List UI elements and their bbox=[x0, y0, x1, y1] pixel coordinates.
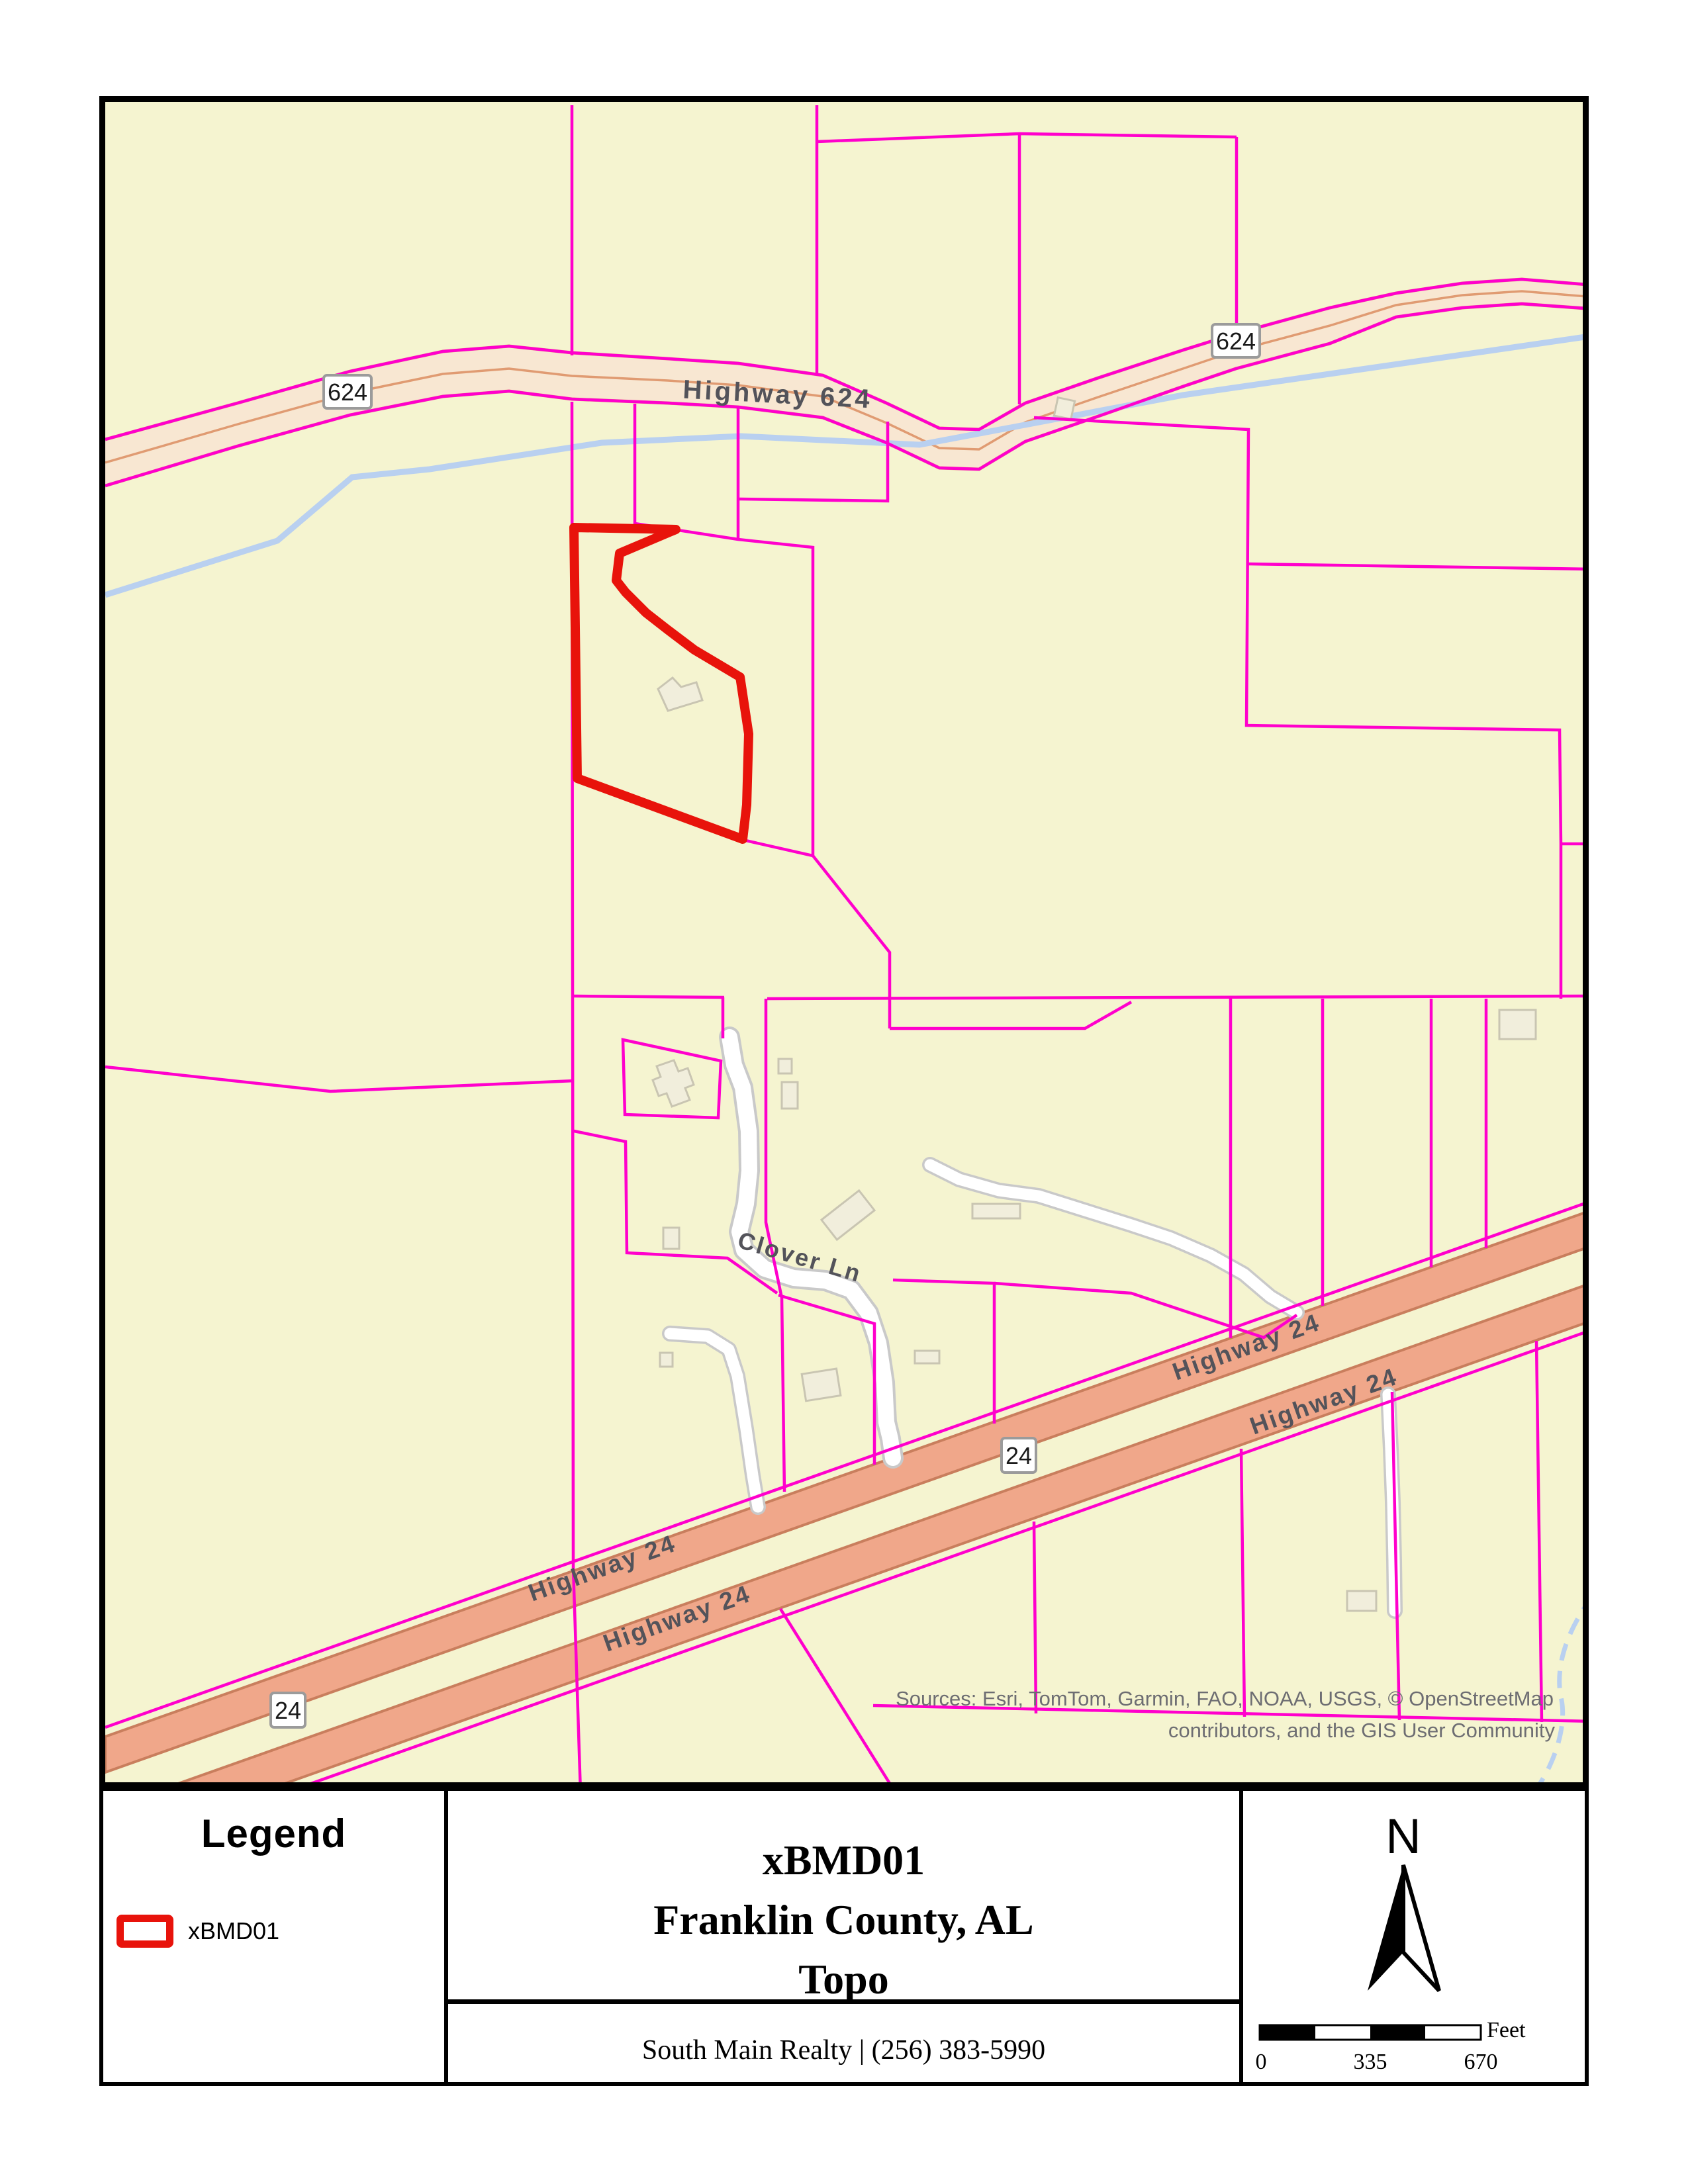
north-label: N bbox=[1385, 1809, 1421, 1864]
scale-bar: 0 335 670 Feet bbox=[1256, 2018, 1526, 2074]
route-24-number: 24 bbox=[275, 1697, 301, 1724]
scale-tick-670: 670 bbox=[1464, 2050, 1498, 2074]
legend-panel: Legend xBMD01 bbox=[99, 1787, 448, 2086]
legend-title: Legend bbox=[103, 1811, 444, 1856]
route-shield-624-icon: 624 bbox=[1212, 324, 1260, 357]
scale-tick-0: 0 bbox=[1256, 2050, 1267, 2074]
route-24-number: 24 bbox=[1006, 1442, 1032, 1469]
realty-footer: South Main Realty | (256) 383-5990 bbox=[448, 2034, 1239, 2066]
map-title-line2: Franklin County, AL bbox=[448, 1890, 1239, 1950]
map-title-line1: xBMD01 bbox=[448, 1831, 1239, 1890]
route-shield-624-icon: 624 bbox=[324, 375, 371, 408]
map-canvas: 624 624 24 24 Highway 624 Highway 24 Hig… bbox=[99, 96, 1589, 1788]
route-624-number: 624 bbox=[328, 379, 367, 406]
route-shield-24-icon: 24 bbox=[271, 1693, 305, 1727]
map-background bbox=[105, 102, 1583, 1782]
sources-credit-line2: contributors, and the GIS User Community bbox=[1168, 1719, 1556, 1742]
title-divider bbox=[448, 1999, 1239, 2004]
legend-item: xBMD01 bbox=[117, 1915, 444, 1948]
north-scale-panel: N 0 335 670 Feet bbox=[1239, 1787, 1589, 2086]
route-shield-24-icon: 24 bbox=[1002, 1438, 1036, 1473]
legend-item-label: xBMD01 bbox=[188, 1917, 279, 1945]
north-arrow-icon bbox=[1368, 1865, 1439, 1991]
subject-parcel-swatch-icon bbox=[117, 1915, 173, 1948]
sources-credit-line1: Sources: Esri, TomTom, Garmin, FAO, NOAA… bbox=[896, 1687, 1554, 1710]
route-624-number: 624 bbox=[1216, 328, 1256, 355]
title-block: xBMD01 Franklin County, AL Topo South Ma… bbox=[444, 1787, 1243, 2086]
scale-unit-label: Feet bbox=[1487, 2018, 1526, 2042]
scale-tick-335: 335 bbox=[1354, 2050, 1387, 2074]
